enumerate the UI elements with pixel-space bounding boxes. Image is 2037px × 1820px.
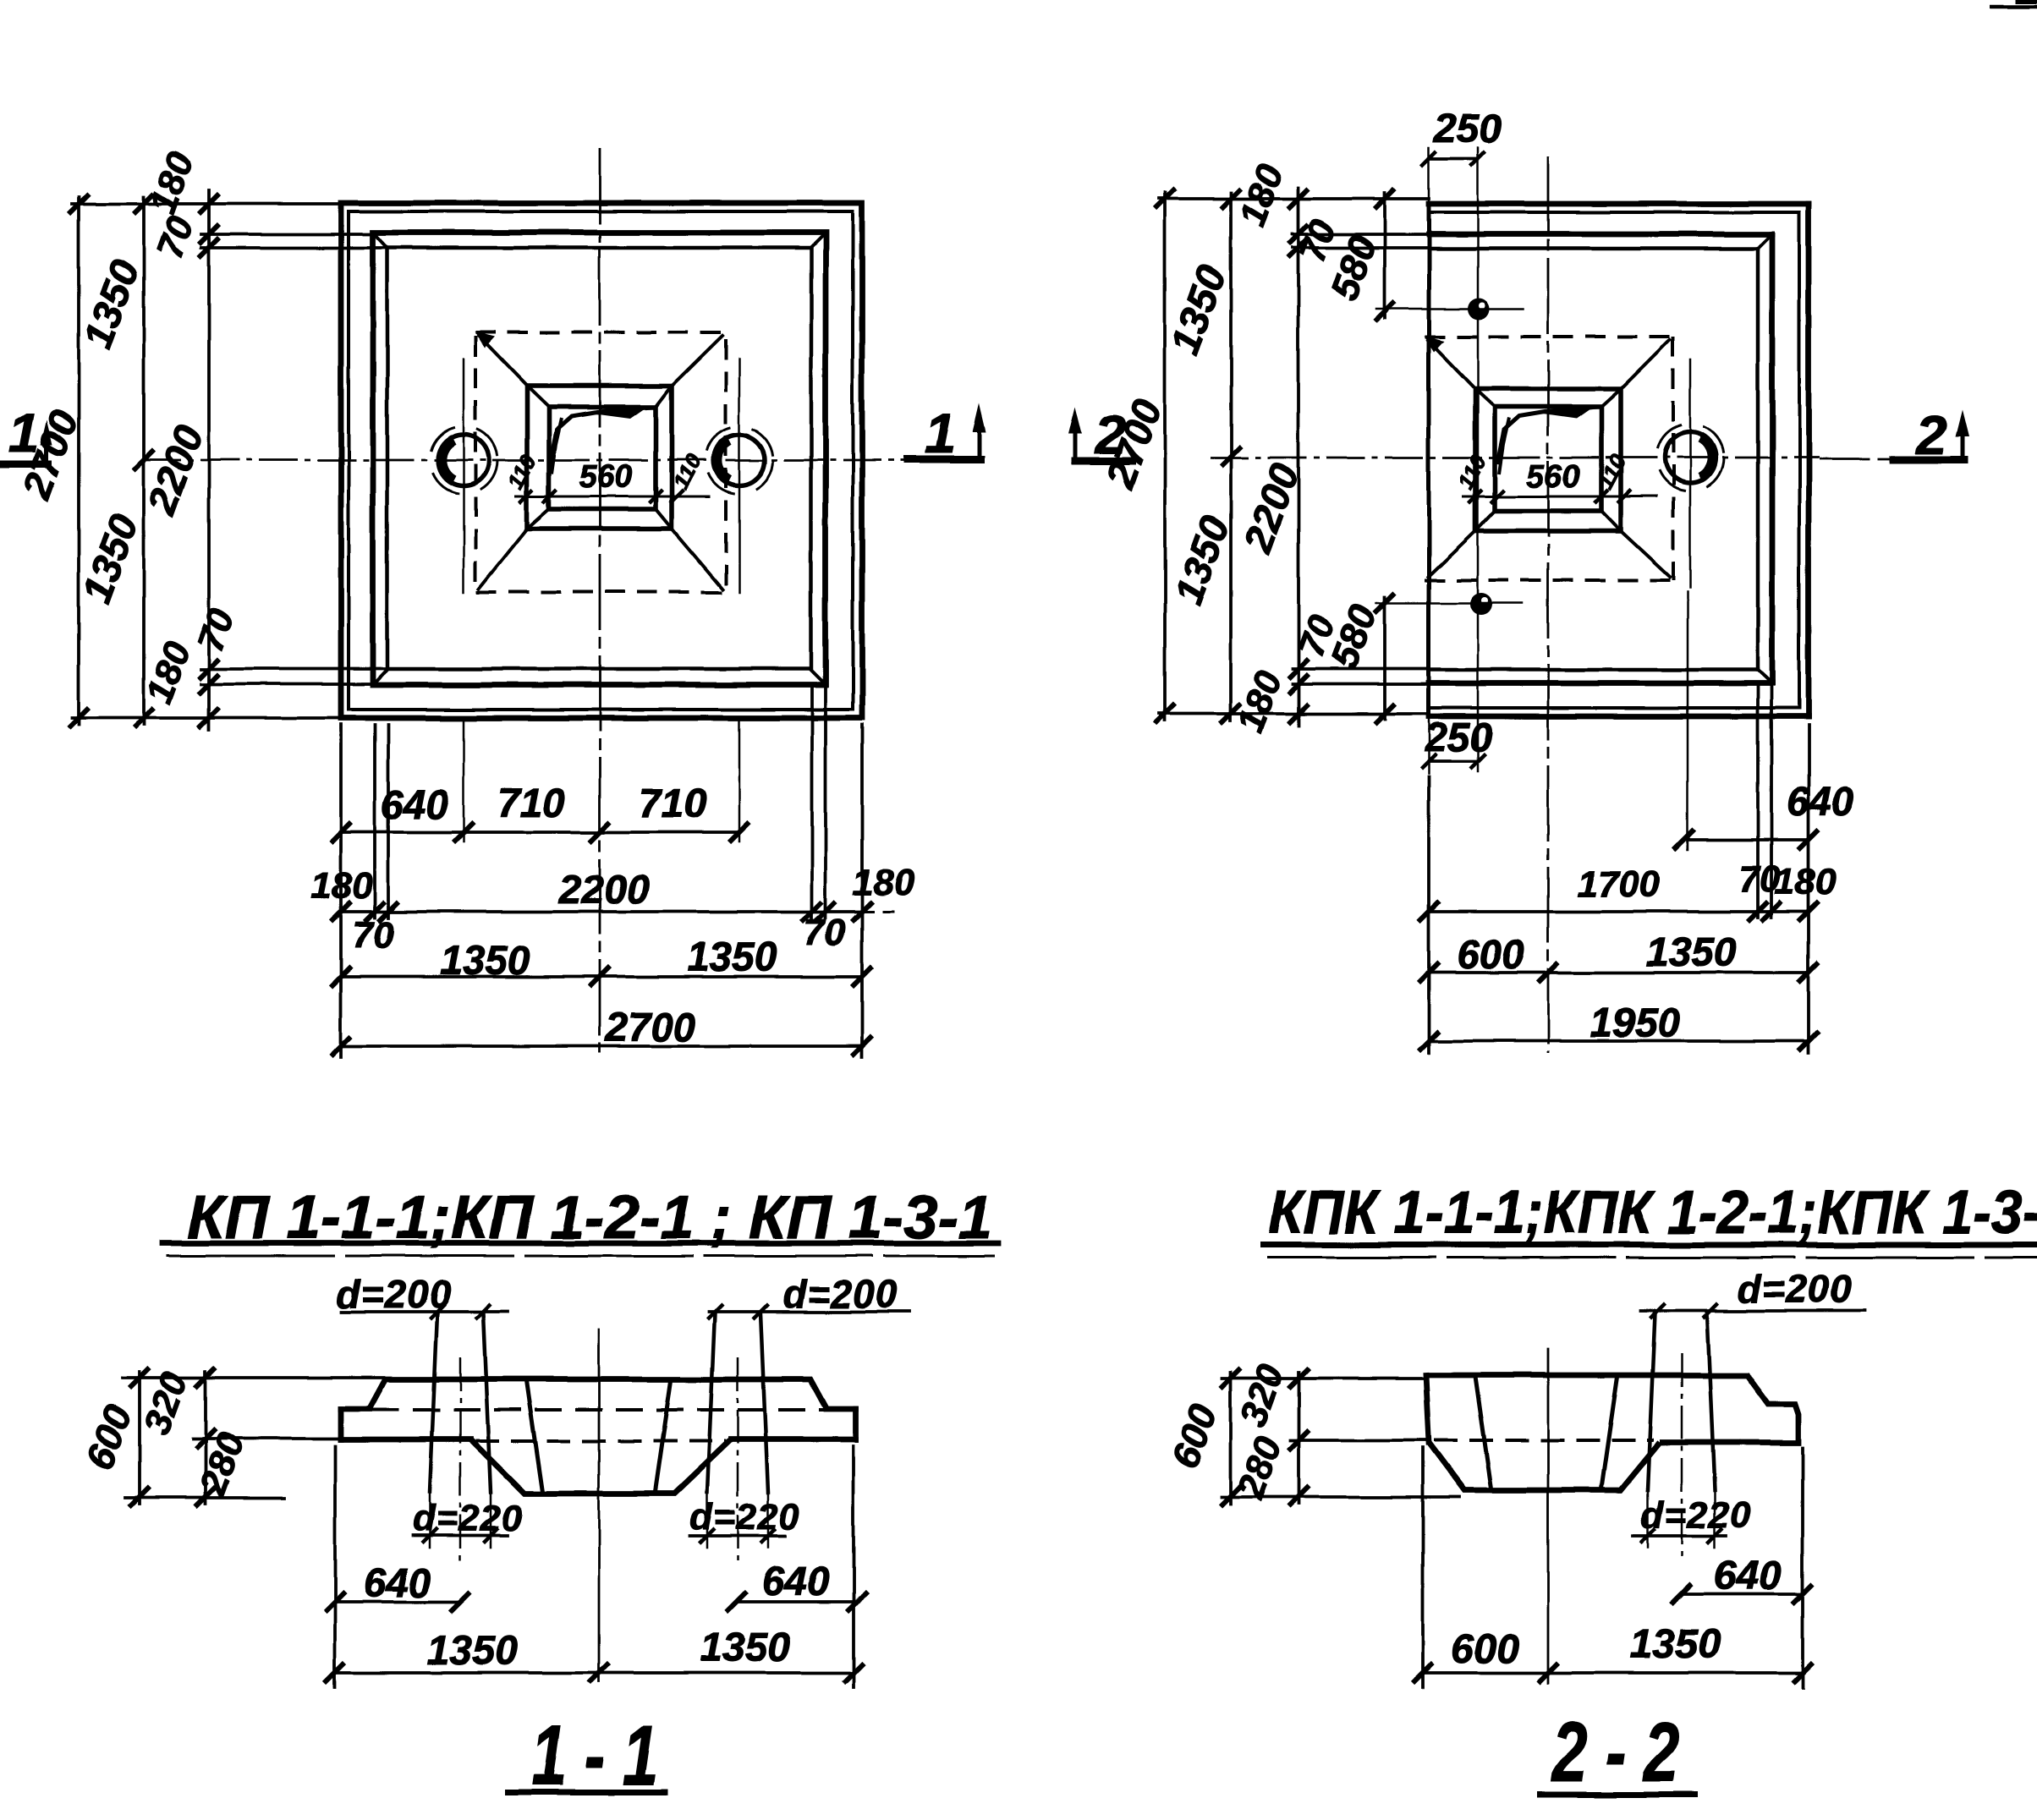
- svg-text:1350: 1350: [74, 508, 147, 609]
- svg-text:280: 280: [1229, 1431, 1290, 1505]
- svg-text:d=200: d=200: [1738, 1267, 1853, 1311]
- svg-text:1350: 1350: [1646, 930, 1737, 975]
- svg-text:1350: 1350: [1630, 1622, 1721, 1667]
- svg-text:180: 180: [1232, 159, 1292, 232]
- svg-text:640: 640: [363, 1561, 431, 1606]
- svg-text:640: 640: [1787, 780, 1854, 825]
- svg-text:710: 710: [497, 781, 565, 826]
- svg-text:600: 600: [1161, 1398, 1225, 1474]
- svg-text:710: 710: [639, 781, 706, 826]
- svg-text:640: 640: [1714, 1554, 1782, 1598]
- svg-text:1700: 1700: [1577, 863, 1660, 905]
- svg-text:d=200: d=200: [337, 1272, 453, 1316]
- svg-text:70: 70: [189, 603, 243, 656]
- svg-text:d=220: d=220: [690, 1496, 801, 1538]
- svg-text:2 - 2: 2 - 2: [1551, 1705, 1679, 1800]
- svg-text:110: 110: [502, 450, 541, 493]
- svg-text:640: 640: [761, 1560, 829, 1604]
- svg-text:2200: 2200: [558, 868, 650, 913]
- svg-text:2: 2: [1915, 403, 1948, 466]
- svg-text:d=220: d=220: [413, 1498, 524, 1539]
- svg-text:1350: 1350: [75, 254, 148, 354]
- svg-text:180: 180: [139, 636, 199, 709]
- svg-text:d=200: d=200: [782, 1272, 898, 1316]
- svg-text:70: 70: [353, 914, 394, 956]
- svg-text:250: 250: [1424, 715, 1492, 760]
- svg-text:КПК 1-1-1;КПК 1-2-1;КПК 1-3-1: КПК 1-1-1;КПК 1-2-1;КПК 1-3-1: [1269, 1179, 2037, 1247]
- svg-text:180: 180: [852, 862, 914, 903]
- svg-text:2700: 2700: [605, 1006, 696, 1050]
- svg-text:600: 600: [1457, 933, 1524, 978]
- svg-text:d=220: d=220: [1641, 1494, 1752, 1536]
- svg-text:1 - 1: 1 - 1: [531, 1708, 658, 1803]
- svg-text:180: 180: [1230, 666, 1290, 738]
- svg-text:560: 560: [1526, 459, 1579, 495]
- svg-text:180: 180: [1774, 861, 1837, 902]
- svg-text:1350: 1350: [700, 1625, 791, 1670]
- svg-text:600: 600: [76, 1399, 140, 1475]
- svg-text:2200: 2200: [140, 419, 213, 521]
- svg-text:600: 600: [1452, 1627, 1519, 1672]
- svg-text:70: 70: [149, 211, 202, 264]
- svg-text:70: 70: [804, 912, 846, 953]
- svg-text:180: 180: [310, 865, 373, 907]
- svg-text:180: 180: [142, 146, 202, 219]
- svg-text:1350: 1350: [1162, 260, 1235, 360]
- svg-text:1350: 1350: [1166, 510, 1238, 611]
- svg-text:1950: 1950: [1590, 1001, 1681, 1046]
- svg-text:250: 250: [1433, 107, 1502, 151]
- svg-text:1: 1: [925, 402, 956, 464]
- svg-text:560: 560: [579, 459, 632, 495]
- svg-text:1350: 1350: [687, 935, 777, 980]
- svg-text:1350: 1350: [440, 939, 530, 984]
- svg-text:640: 640: [381, 783, 448, 828]
- svg-text:1350: 1350: [427, 1629, 518, 1674]
